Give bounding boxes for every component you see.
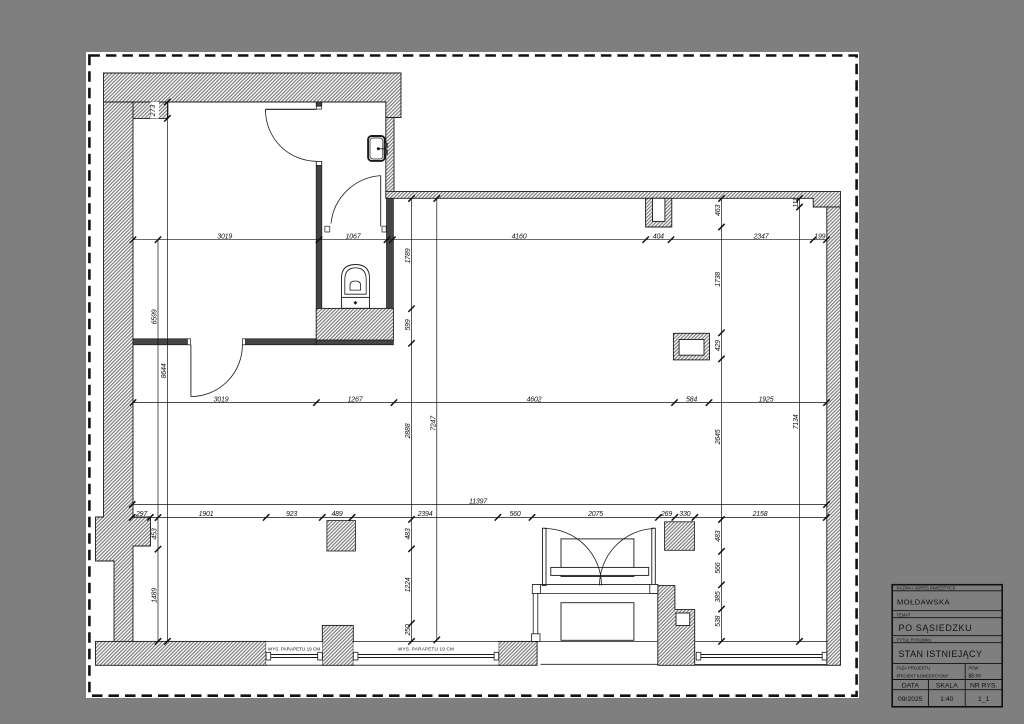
svg-text:POW: POW (969, 666, 979, 671)
svg-text:538: 538 (715, 615, 722, 626)
svg-text:4160: 4160 (512, 234, 527, 241)
svg-text:1901: 1901 (199, 511, 214, 518)
svg-text:2645: 2645 (715, 429, 722, 445)
svg-text:599: 599 (405, 319, 412, 330)
svg-text:NAZWA I ADRES INWESTYCJI: NAZWA I ADRES INWESTYCJI (897, 586, 956, 591)
svg-text:2888: 2888 (405, 423, 412, 439)
svg-text:1_1: 1_1 (978, 696, 990, 703)
svg-text:404: 404 (653, 234, 664, 241)
svg-text:4602: 4602 (527, 396, 542, 403)
svg-text:DATA: DATA (902, 682, 920, 689)
svg-text:269: 269 (660, 511, 672, 518)
svg-text:273: 273 (150, 105, 157, 118)
svg-text:566: 566 (715, 562, 722, 573)
svg-text:7247: 7247 (430, 415, 437, 431)
svg-text:PO SĄSIEDZKU: PO SĄSIEDZKU (899, 623, 973, 633)
svg-text:1224: 1224 (405, 577, 412, 592)
svg-text:250: 250 (405, 624, 412, 636)
svg-text:489: 489 (331, 511, 342, 518)
svg-text:1267: 1267 (348, 396, 364, 403)
svg-text:1789: 1789 (405, 248, 412, 263)
svg-text:463: 463 (715, 205, 722, 216)
svg-text:3019: 3019 (217, 234, 232, 241)
svg-text:923: 923 (286, 511, 297, 518)
svg-text:1925: 1925 (759, 396, 774, 403)
svg-text:WYS. PARAPETU 19 CM: WYS. PARAPETU 19 CM (398, 647, 454, 652)
svg-text:1489: 1489 (152, 588, 159, 603)
svg-text:2394: 2394 (417, 511, 433, 518)
svg-text:2347: 2347 (753, 234, 770, 241)
svg-text:111: 111 (793, 197, 800, 207)
svg-text:297: 297 (135, 511, 148, 518)
svg-text:1:40: 1:40 (940, 696, 953, 703)
svg-text:584: 584 (686, 396, 697, 403)
svg-text:429: 429 (715, 340, 722, 351)
svg-text:11397: 11397 (469, 498, 488, 505)
svg-text:09/2025: 09/2025 (898, 696, 923, 703)
svg-text:330: 330 (679, 511, 690, 518)
svg-text:3019: 3019 (214, 396, 229, 403)
svg-text:PROJEKT KONCEPCYJNY: PROJEKT KONCEPCYJNY (897, 673, 949, 678)
svg-text:385: 385 (715, 591, 722, 602)
svg-text:560: 560 (509, 511, 520, 518)
svg-text:FAZA PROJEKTU: FAZA PROJEKTU (897, 666, 931, 671)
svg-text:7134: 7134 (793, 414, 800, 429)
svg-text:STAN ISTNIEJĄCY: STAN ISTNIEJĄCY (899, 649, 983, 659)
svg-text:6599: 6599 (152, 309, 159, 324)
svg-text:199: 199 (814, 234, 825, 241)
svg-text:2075: 2075 (587, 511, 603, 518)
svg-text:WYS. PARAPETU 19 CM: WYS. PARAPETU 19 CM (268, 647, 320, 652)
svg-text:TYTUŁ RYSUNKU: TYTUŁ RYSUNKU (897, 637, 932, 642)
svg-text:2158: 2158 (752, 511, 768, 518)
svg-text:1738: 1738 (715, 272, 722, 287)
svg-text:SKALA: SKALA (936, 682, 958, 689)
svg-text:483: 483 (715, 530, 722, 541)
svg-text:MOŁDAWSKA: MOŁDAWSKA (897, 598, 950, 607)
svg-text:TEMAT: TEMAT (897, 612, 911, 617)
svg-text:88 m²: 88 m² (969, 673, 982, 679)
svg-text:483: 483 (405, 528, 412, 539)
svg-text:8644: 8644 (161, 363, 168, 378)
svg-text:453: 453 (152, 528, 159, 539)
svg-text:1067: 1067 (346, 234, 362, 241)
svg-text:NR RYS.: NR RYS. (970, 682, 998, 689)
